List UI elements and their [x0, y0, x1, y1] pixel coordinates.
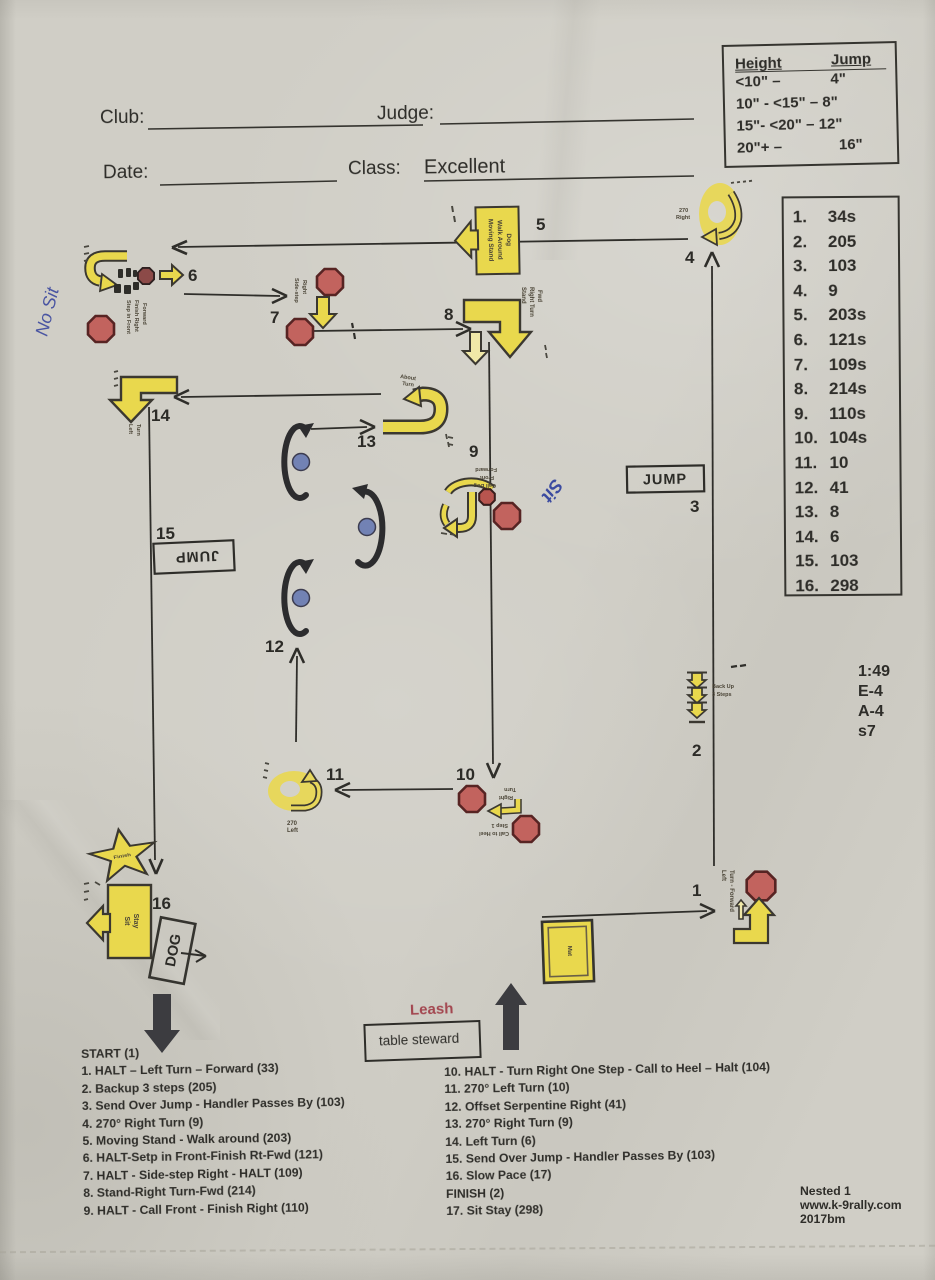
svg-text:DOG: DOG [163, 933, 185, 968]
svg-text:3: 3 [690, 497, 699, 516]
svg-text:1: 1 [692, 881, 701, 900]
svg-text:3 Steps: 3 Steps [712, 692, 732, 698]
svg-text:Stand: Stand [520, 287, 526, 304]
svg-text:Walk Around: Walk Around [496, 220, 504, 260]
svg-text:Left: Left [127, 424, 133, 434]
svg-text:Turn: Turn [504, 786, 516, 792]
svg-text:9: 9 [469, 442, 478, 461]
svg-text:Back Up: Back Up [712, 684, 735, 690]
svg-text:Moving Stand: Moving Stand [487, 219, 495, 262]
svg-text:270: 270 [287, 821, 298, 827]
svg-text:Turn: Turn [402, 381, 415, 389]
svg-text:Stay: Stay [132, 914, 139, 929]
svg-text:Forward: Forward [141, 303, 147, 325]
svg-text:14: 14 [151, 406, 170, 425]
svg-text:270: 270 [679, 208, 688, 214]
svg-text:Left: Left [720, 870, 726, 881]
svg-text:2: 2 [692, 741, 701, 760]
svg-text:10: 10 [456, 765, 475, 784]
svg-text:Fwd: Fwd [536, 290, 542, 302]
svg-text:Sit: Sit [123, 917, 130, 927]
svg-text:Right Turn: Right Turn [528, 287, 534, 317]
svg-text:JUMP: JUMP [643, 472, 688, 489]
svg-text:Right: Right [499, 794, 513, 800]
svg-text:Step 1: Step 1 [491, 822, 508, 828]
svg-text:Turn: Turn [135, 424, 141, 436]
svg-text:Front: Front [480, 474, 494, 480]
svg-text:16: 16 [152, 894, 171, 913]
svg-text:JUMP: JUMP [174, 547, 219, 565]
svg-text:Finish Right: Finish Right [133, 300, 139, 332]
svg-text:Sit: Sit [537, 476, 567, 507]
svg-text:6: 6 [188, 266, 197, 285]
svg-text:Side-step: Side-step [293, 278, 299, 303]
svg-text:Turn - Forward: Turn - Forward [728, 870, 734, 912]
svg-text:15: 15 [156, 524, 175, 543]
svg-text:Right: Right [676, 215, 690, 221]
svg-text:8: 8 [444, 305, 453, 324]
svg-text:Step in Front: Step in Front [125, 300, 131, 334]
svg-text:Dog: Dog [505, 233, 512, 246]
svg-text:No Sit: No Sit [31, 285, 63, 338]
svg-text:7: 7 [270, 308, 279, 327]
svg-text:Forward: Forward [475, 466, 497, 472]
svg-text:5: 5 [536, 215, 545, 234]
svg-text:12: 12 [265, 637, 284, 656]
svg-text:Mat: Mat [566, 946, 572, 957]
svg-text:11: 11 [326, 765, 344, 784]
svg-text:4: 4 [685, 248, 695, 267]
svg-text:13: 13 [357, 432, 376, 451]
svg-text:Left: Left [287, 828, 298, 834]
svg-text:Right: Right [301, 280, 307, 294]
svg-text:Call to Heel: Call to Heel [479, 830, 509, 836]
svg-text:Call Dog: Call Dog [474, 482, 496, 488]
